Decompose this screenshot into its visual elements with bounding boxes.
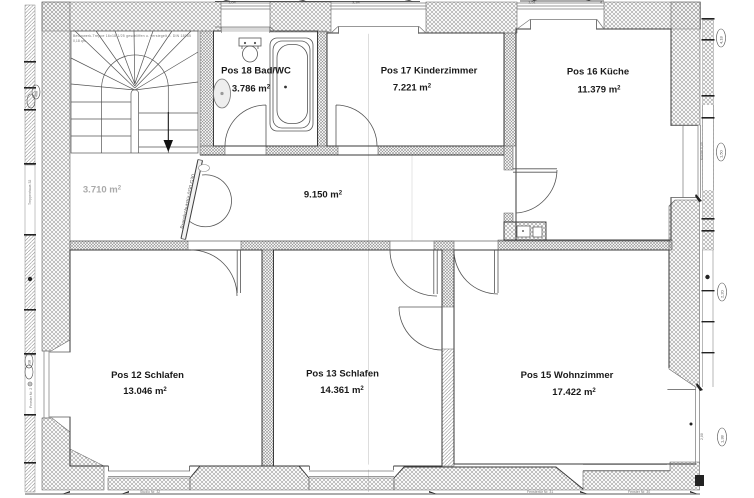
svg-text:0,18 qm: 0,18 qm xyxy=(73,39,86,43)
svg-text:Fenster Nr. 30: Fenster Nr. 30 xyxy=(628,490,650,494)
svg-text:17.422 m2: 17.422 m2 xyxy=(552,387,596,398)
svg-text:Pos 17 Kinderzimmer: Pos 17 Kinderzimmer xyxy=(381,66,478,77)
svg-text:Betonwerk-Treppe 16x18,1/25 ge: Betonwerk-Treppe 16x18,1/25 geschliffen … xyxy=(73,34,191,38)
svg-text:1,50: 1,50 xyxy=(719,149,724,158)
svg-text:Studio Nr. 32: Studio Nr. 32 xyxy=(140,490,160,494)
svg-text:Pos 13 Schlafen: Pos 13 Schlafen xyxy=(306,369,379,380)
svg-text:Pos 15 Wohnzimmer: Pos 15 Wohnzimmer xyxy=(521,370,614,381)
svg-text:4,18: 4,18 xyxy=(719,35,724,44)
svg-text:3.786 m2: 3.786 m2 xyxy=(232,84,271,95)
svg-text:Pos 16 Küche: Pos 16 Küche xyxy=(567,67,629,78)
svg-text:3,34: 3,34 xyxy=(352,0,361,5)
svg-text:3.710 m2: 3.710 m2 xyxy=(83,185,122,196)
svg-text:7.221 m2: 7.221 m2 xyxy=(393,83,432,94)
svg-text:2,88: 2,88 xyxy=(700,433,704,440)
svg-text:Küche 5,49: Küche 5,49 xyxy=(700,142,704,160)
svg-text:2,20: 2,20 xyxy=(720,289,725,298)
svg-text:13.046 m2: 13.046 m2 xyxy=(123,386,167,397)
svg-text:Treppenhaus 32: Treppenhaus 32 xyxy=(28,180,32,205)
svg-text:9.150 m2: 9.150 m2 xyxy=(304,190,343,201)
svg-text:14.361 m2: 14.361 m2 xyxy=(320,385,364,396)
svg-text:418: 418 xyxy=(28,360,32,366)
svg-text:1,64: 1,64 xyxy=(228,0,237,5)
svg-text:Pos 12 Schlafen: Pos 12 Schlafen xyxy=(111,370,184,381)
svg-text:11.379 m2: 11.379 m2 xyxy=(578,85,622,96)
svg-text:1,38: 1,38 xyxy=(720,434,725,443)
svg-text:Pos 18 Bad/WC: Pos 18 Bad/WC xyxy=(221,66,291,77)
svg-text:Fenster Nr. 2: Fenster Nr. 2 xyxy=(29,388,33,408)
svg-text:408: 408 xyxy=(35,91,39,97)
svg-text:Fenstertür Nr. 31: Fenstertür Nr. 31 xyxy=(527,490,553,494)
